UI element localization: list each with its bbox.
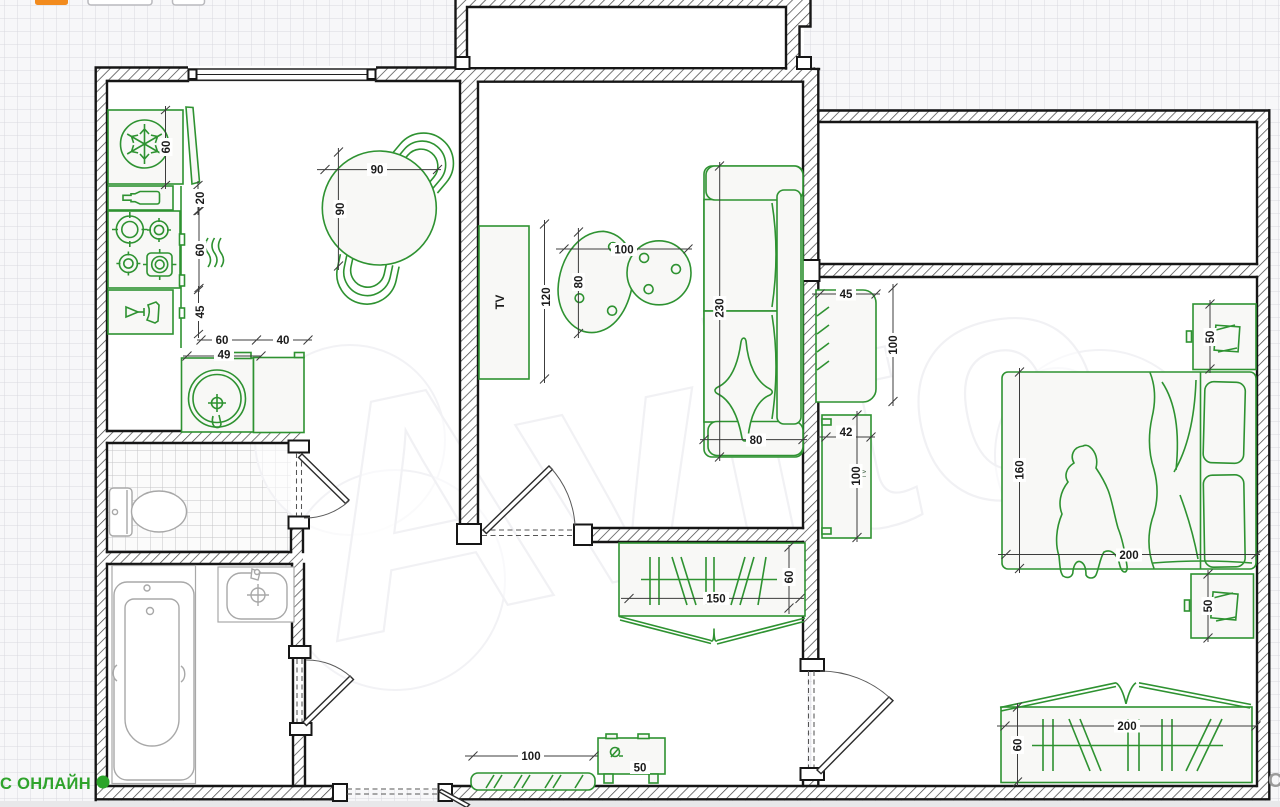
svg-text:60: 60 xyxy=(784,571,796,584)
svg-text:45: 45 xyxy=(840,289,853,301)
svg-text:20: 20 xyxy=(195,192,207,205)
svg-text:60: 60 xyxy=(1013,739,1025,752)
svg-text:50: 50 xyxy=(1203,600,1215,613)
svg-text:60: 60 xyxy=(216,335,229,347)
svg-text:49: 49 xyxy=(218,350,231,362)
svg-text:42: 42 xyxy=(840,427,853,439)
svg-text:230: 230 xyxy=(715,298,727,317)
svg-text:50: 50 xyxy=(1205,331,1217,344)
svg-text:160: 160 xyxy=(1015,460,1027,479)
svg-text:60: 60 xyxy=(195,244,207,257)
svg-text:C: C xyxy=(1268,770,1280,792)
svg-text:90: 90 xyxy=(335,203,347,216)
svg-text:100: 100 xyxy=(851,466,863,485)
svg-text:С ОНЛАЙН: С ОНЛАЙН xyxy=(0,774,91,793)
svg-text:40: 40 xyxy=(277,335,290,347)
svg-text:45: 45 xyxy=(195,305,207,318)
svg-text:200: 200 xyxy=(1119,550,1138,562)
svg-text:120: 120 xyxy=(541,287,553,306)
svg-text:200: 200 xyxy=(1117,721,1136,733)
svg-text:80: 80 xyxy=(750,435,763,447)
svg-text:150: 150 xyxy=(706,593,725,605)
svg-text:100: 100 xyxy=(521,751,540,763)
svg-text:50: 50 xyxy=(634,763,647,775)
svg-text:90: 90 xyxy=(371,165,384,177)
svg-text:80: 80 xyxy=(573,276,585,289)
svg-text:100: 100 xyxy=(888,335,900,354)
svg-text:TV: TV xyxy=(495,294,507,309)
svg-text:60: 60 xyxy=(161,141,173,154)
svg-text:100: 100 xyxy=(614,245,633,257)
